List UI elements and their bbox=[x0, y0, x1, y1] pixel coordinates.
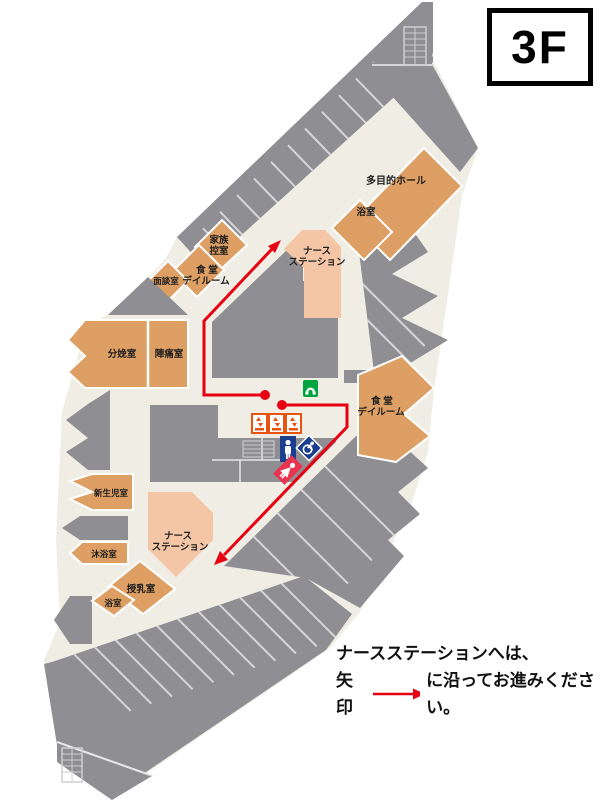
floor-badge: 3F bbox=[487, 8, 593, 86]
label-nurse-station-upper-2: ステーション bbox=[289, 257, 346, 268]
route-legend: ナースステーションへは、 矢印 に沿ってお進みください。 bbox=[336, 640, 606, 722]
label-delivery-room: 分娩室 bbox=[108, 348, 137, 360]
label-family-room-2: 控室 bbox=[209, 245, 229, 257]
label-baby-bath-room: 沐浴室 bbox=[91, 549, 117, 559]
label-family-room-1: 家族 bbox=[209, 234, 229, 246]
label-bath-upper: 浴室 bbox=[356, 206, 376, 218]
label-nurse-station-lower-1: ナース bbox=[164, 531, 192, 542]
label-dining-left-1: 食 堂 bbox=[195, 264, 218, 276]
elevator-icon bbox=[286, 414, 301, 433]
elevator-icon bbox=[269, 414, 284, 433]
label-bath-lower: 浴室 bbox=[104, 598, 122, 608]
label-dining-right-2: デイルーム bbox=[357, 406, 405, 418]
label-nurse-station-upper-1: ナース bbox=[303, 246, 331, 257]
label-nurse-station-lower-2: ステーション bbox=[152, 542, 209, 553]
route-start-dot bbox=[277, 400, 287, 410]
floor-badge-text: 3F bbox=[511, 20, 569, 74]
label-meeting-room: 面談室 bbox=[153, 276, 179, 286]
label-newborn-room: 新生児室 bbox=[94, 488, 129, 498]
elevator-icons bbox=[252, 414, 301, 433]
legend-line2: 矢印 に沿ってお進みください。 bbox=[336, 667, 606, 721]
legend-line2-after: に沿ってお進みください。 bbox=[426, 667, 606, 721]
public-phone-icon bbox=[303, 380, 318, 397]
floor-map-page: 多目的ホール 浴室 家族 控室 面談室 食 堂 デイルーム ナース ステーション… bbox=[0, 0, 606, 811]
legend-line2-before: 矢印 bbox=[336, 667, 366, 721]
label-dining-right-1: 食 堂 bbox=[370, 395, 393, 407]
label-labor-room: 陣痛室 bbox=[155, 348, 184, 360]
route-start-dot bbox=[260, 390, 270, 400]
label-multipurpose-hall: 多目的ホール bbox=[366, 174, 426, 187]
legend-red-arrow-icon bbox=[372, 688, 420, 700]
elevator-icon bbox=[252, 414, 267, 433]
legend-line1: ナースステーションへは、 bbox=[336, 640, 606, 667]
label-nursing-room: 授乳室 bbox=[127, 583, 156, 595]
label-dining-left-2: デイルーム bbox=[182, 275, 230, 287]
